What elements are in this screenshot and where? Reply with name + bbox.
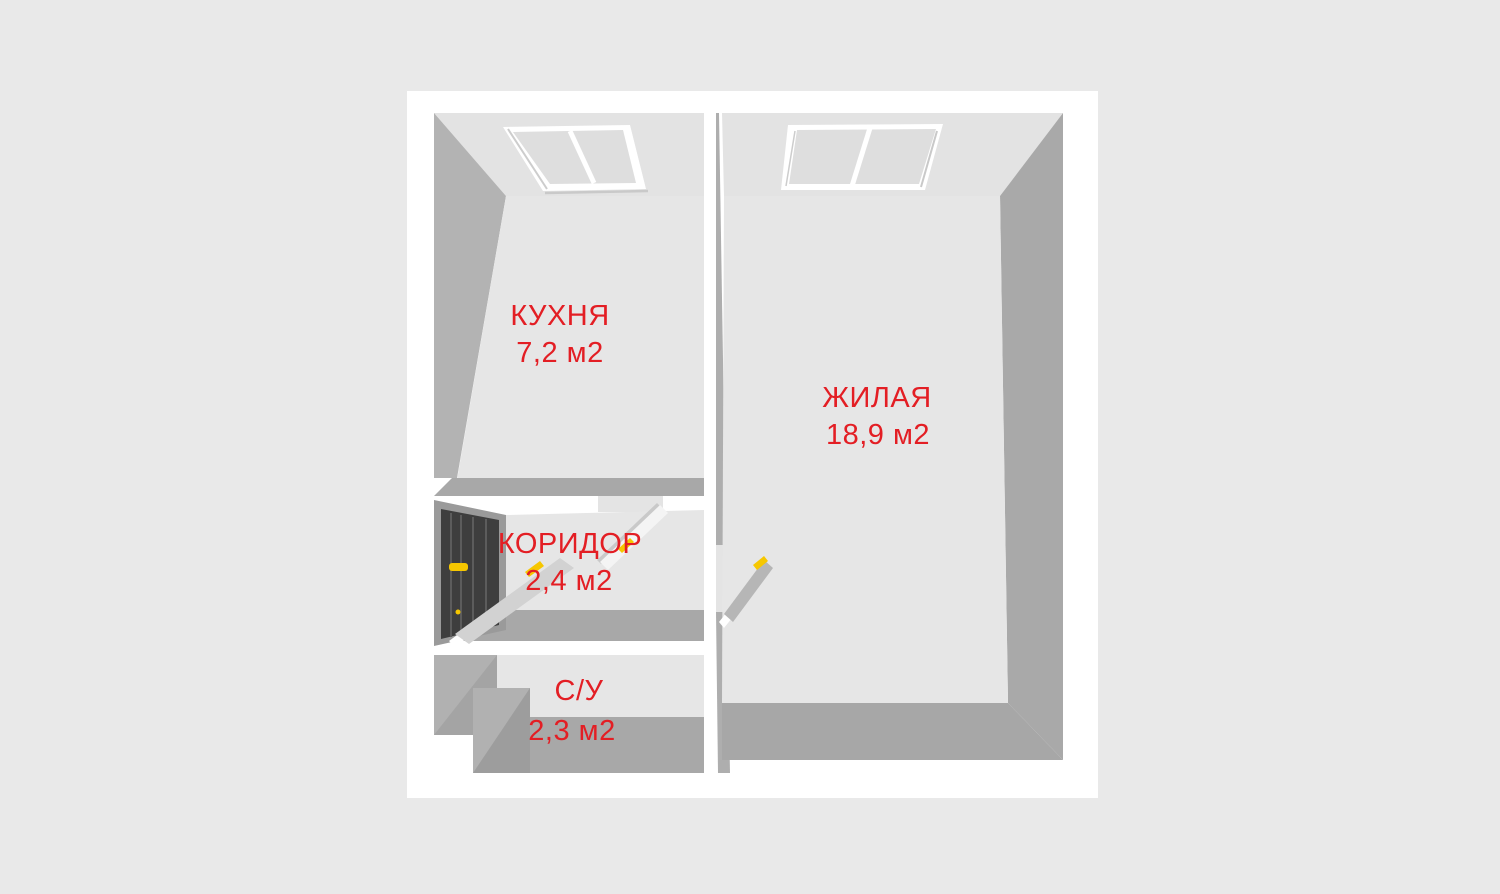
entrance-door-keyhole xyxy=(456,610,461,615)
living-bottom-wall-face xyxy=(722,703,1063,760)
kitchen-bottom-wall-face xyxy=(434,478,704,496)
divider-wall-top xyxy=(704,113,718,773)
kitchen-area: 7,2 м2 xyxy=(516,337,603,369)
living-area: 18,9 м2 xyxy=(826,419,930,451)
corridor-bottom-wall-band xyxy=(434,641,704,655)
living-right-wall-face xyxy=(1000,113,1063,760)
room-bathroom xyxy=(434,655,704,773)
corridor-area: 2,4 м2 xyxy=(525,565,612,597)
floor-plan-svg: КУХНЯ 7,2 м2 ЖИЛАЯ 18,9 м2 КОРИДОР 2,4 м… xyxy=(0,0,1500,894)
bathroom-area: 2,3 м2 xyxy=(528,715,615,747)
bathroom-step-top xyxy=(434,735,473,773)
living-label: ЖИЛАЯ xyxy=(822,382,931,414)
bathroom-label: С/У xyxy=(555,675,604,707)
corridor-label: КОРИДОР xyxy=(498,528,642,560)
floor-plan-canvas: КУХНЯ 7,2 м2 ЖИЛАЯ 18,9 м2 КОРИДОР 2,4 м… xyxy=(0,0,1500,894)
kitchen-label: КУХНЯ xyxy=(510,300,609,332)
living-room-window xyxy=(781,124,943,190)
entrance-door-handle xyxy=(449,563,468,571)
